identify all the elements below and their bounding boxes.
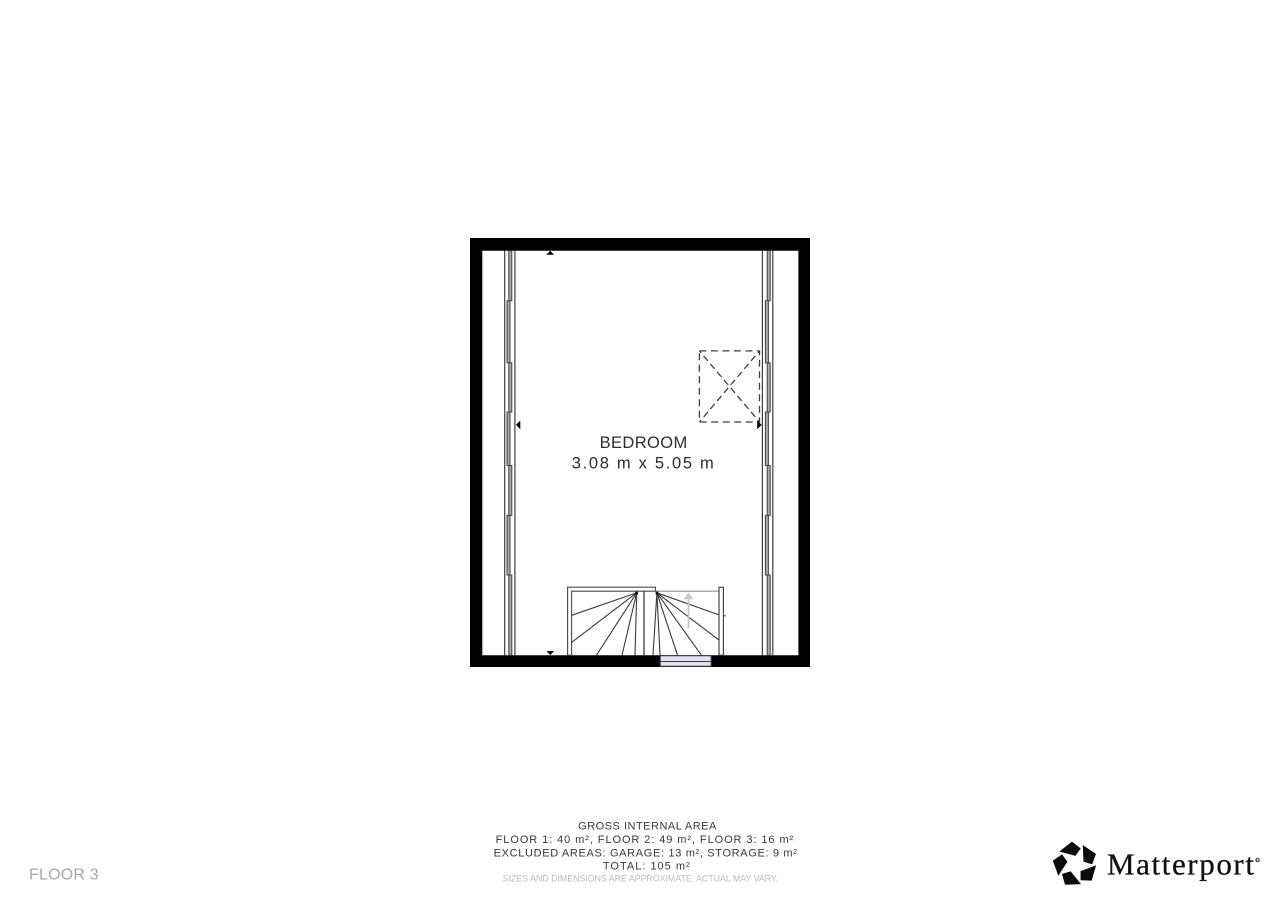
svg-text:SIZES AND DIMENSIONS ARE APPRO: SIZES AND DIMENSIONS ARE APPROXIMATE, AC… xyxy=(503,874,778,884)
svg-text:TOTAL: 105 m²: TOTAL: 105 m² xyxy=(603,861,691,873)
svg-text:GROSS INTERNAL AREA: GROSS INTERNAL AREA xyxy=(578,820,717,832)
svg-text:FLOOR 3: FLOOR 3 xyxy=(29,867,99,884)
svg-text:3.08 m x 5.05 m: 3.08 m x 5.05 m xyxy=(572,455,716,473)
svg-text:FLOOR 1: 40 m², FLOOR 2: 49 m²: FLOOR 1: 40 m², FLOOR 2: 49 m², FLOOR 3:… xyxy=(496,834,794,846)
svg-text:R: R xyxy=(1256,858,1259,862)
svg-text:BEDROOM: BEDROOM xyxy=(600,434,688,452)
svg-text:EXCLUDED AREAS: GARAGE: 13 m²,: EXCLUDED AREAS: GARAGE: 13 m², STORAGE: … xyxy=(494,847,798,859)
svg-text:Matterport: Matterport xyxy=(1107,846,1256,881)
